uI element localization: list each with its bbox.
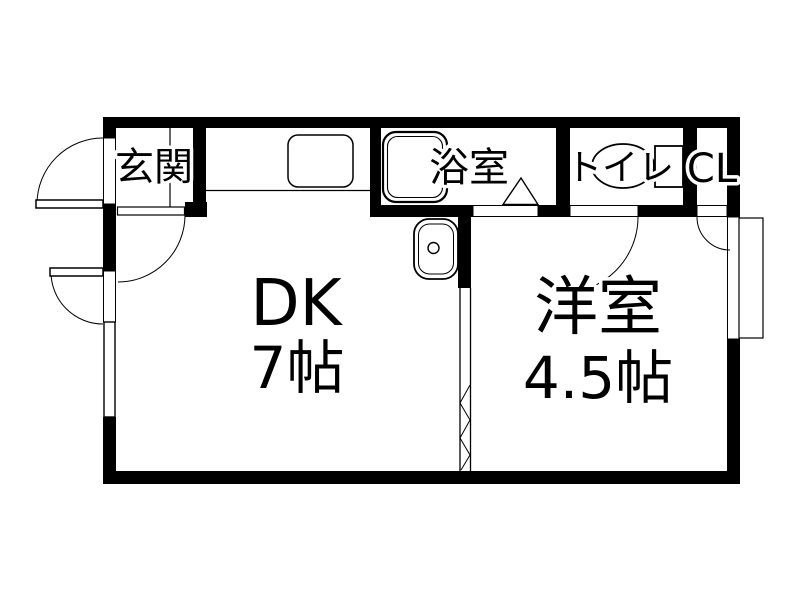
entrance-door-leaf <box>36 200 103 208</box>
entrance-door-opening <box>104 138 116 204</box>
washbasin-drain <box>428 243 439 254</box>
wall-entrance-right <box>193 117 206 202</box>
wall-bath-bottom <box>370 205 473 217</box>
accordion-door-zigzag <box>460 385 470 470</box>
closet-door-swing-arc <box>697 217 730 250</box>
wall-partition-top <box>458 205 471 288</box>
closet-door-opening <box>697 206 727 217</box>
wall-right-lower <box>727 339 740 484</box>
closet-label: CL <box>687 146 738 192</box>
toilet-door-opening <box>570 206 638 217</box>
bedroom-window-gap <box>728 217 740 339</box>
back-door-leaf <box>50 268 103 276</box>
toilet-label: トイレ <box>566 148 674 189</box>
kitchen-sink <box>288 135 353 187</box>
bathroom-label: 浴室 <box>429 145 509 191</box>
entrance-door-swing-arc <box>37 138 103 204</box>
wall-toilet-bottom <box>638 205 697 217</box>
wall-bathroom-left <box>370 117 381 205</box>
western-room-label: 洋室 <box>534 271 662 345</box>
bathroom-door-opening <box>473 206 538 217</box>
wall-left-mid <box>103 204 116 271</box>
wall-left-upper <box>103 117 116 138</box>
western-room-size-label: 4.5帖 <box>523 344 673 412</box>
back-door-opening <box>104 271 116 322</box>
dk-window <box>104 322 115 417</box>
wall-entrance-stub <box>185 202 207 217</box>
wall-left-lower <box>103 417 116 484</box>
partition <box>460 288 471 471</box>
floorplan: 玄関 浴室 トイレ CL DK 7帖 洋室 4.5帖 <box>0 0 800 600</box>
dk-size-label: 7帖 <box>250 334 345 402</box>
hall-door-leaf <box>118 207 185 215</box>
floorplan-page: 玄関 浴室 トイレ CL DK 7帖 洋室 4.5帖 <box>0 0 800 600</box>
entrance-label: 玄関 <box>115 146 193 191</box>
hall-door-swing-arc <box>118 215 185 282</box>
dk-label: DK <box>250 267 343 341</box>
bedroom-window-sill <box>739 218 763 338</box>
wall-bath-bottom-right <box>538 205 570 217</box>
wall-bottom <box>103 471 740 484</box>
back-door-swing-arc <box>51 272 103 324</box>
